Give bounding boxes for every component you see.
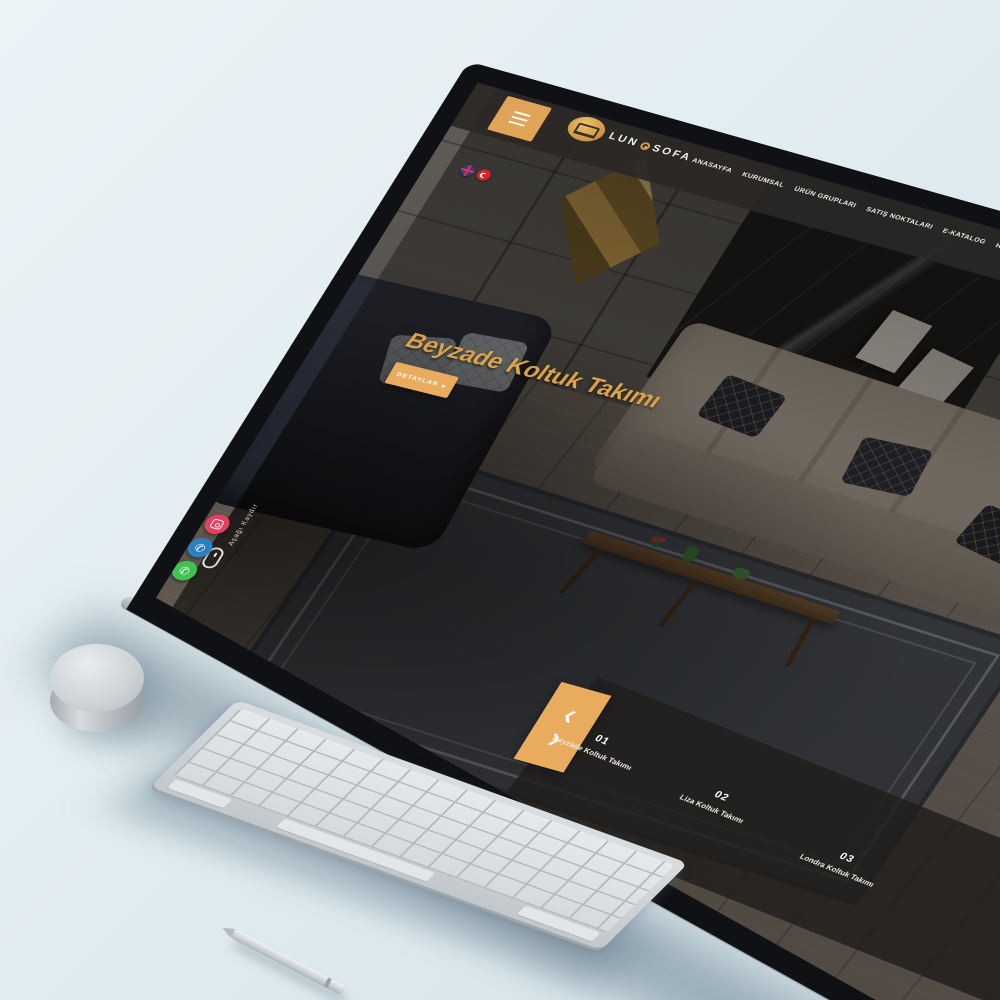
arrow-right-icon: ▸ bbox=[440, 382, 448, 390]
mockup-scene: { "page": { "background": "#e2edf1" }, "… bbox=[0, 0, 1000, 1000]
whatsapp-icon: ✆ bbox=[177, 564, 193, 576]
stylus-pen bbox=[230, 929, 346, 996]
phone-icon: ✆ bbox=[192, 542, 208, 554]
instagram-icon bbox=[209, 518, 225, 530]
logo-o-ring-icon bbox=[639, 141, 652, 151]
surface-dial bbox=[50, 644, 144, 736]
